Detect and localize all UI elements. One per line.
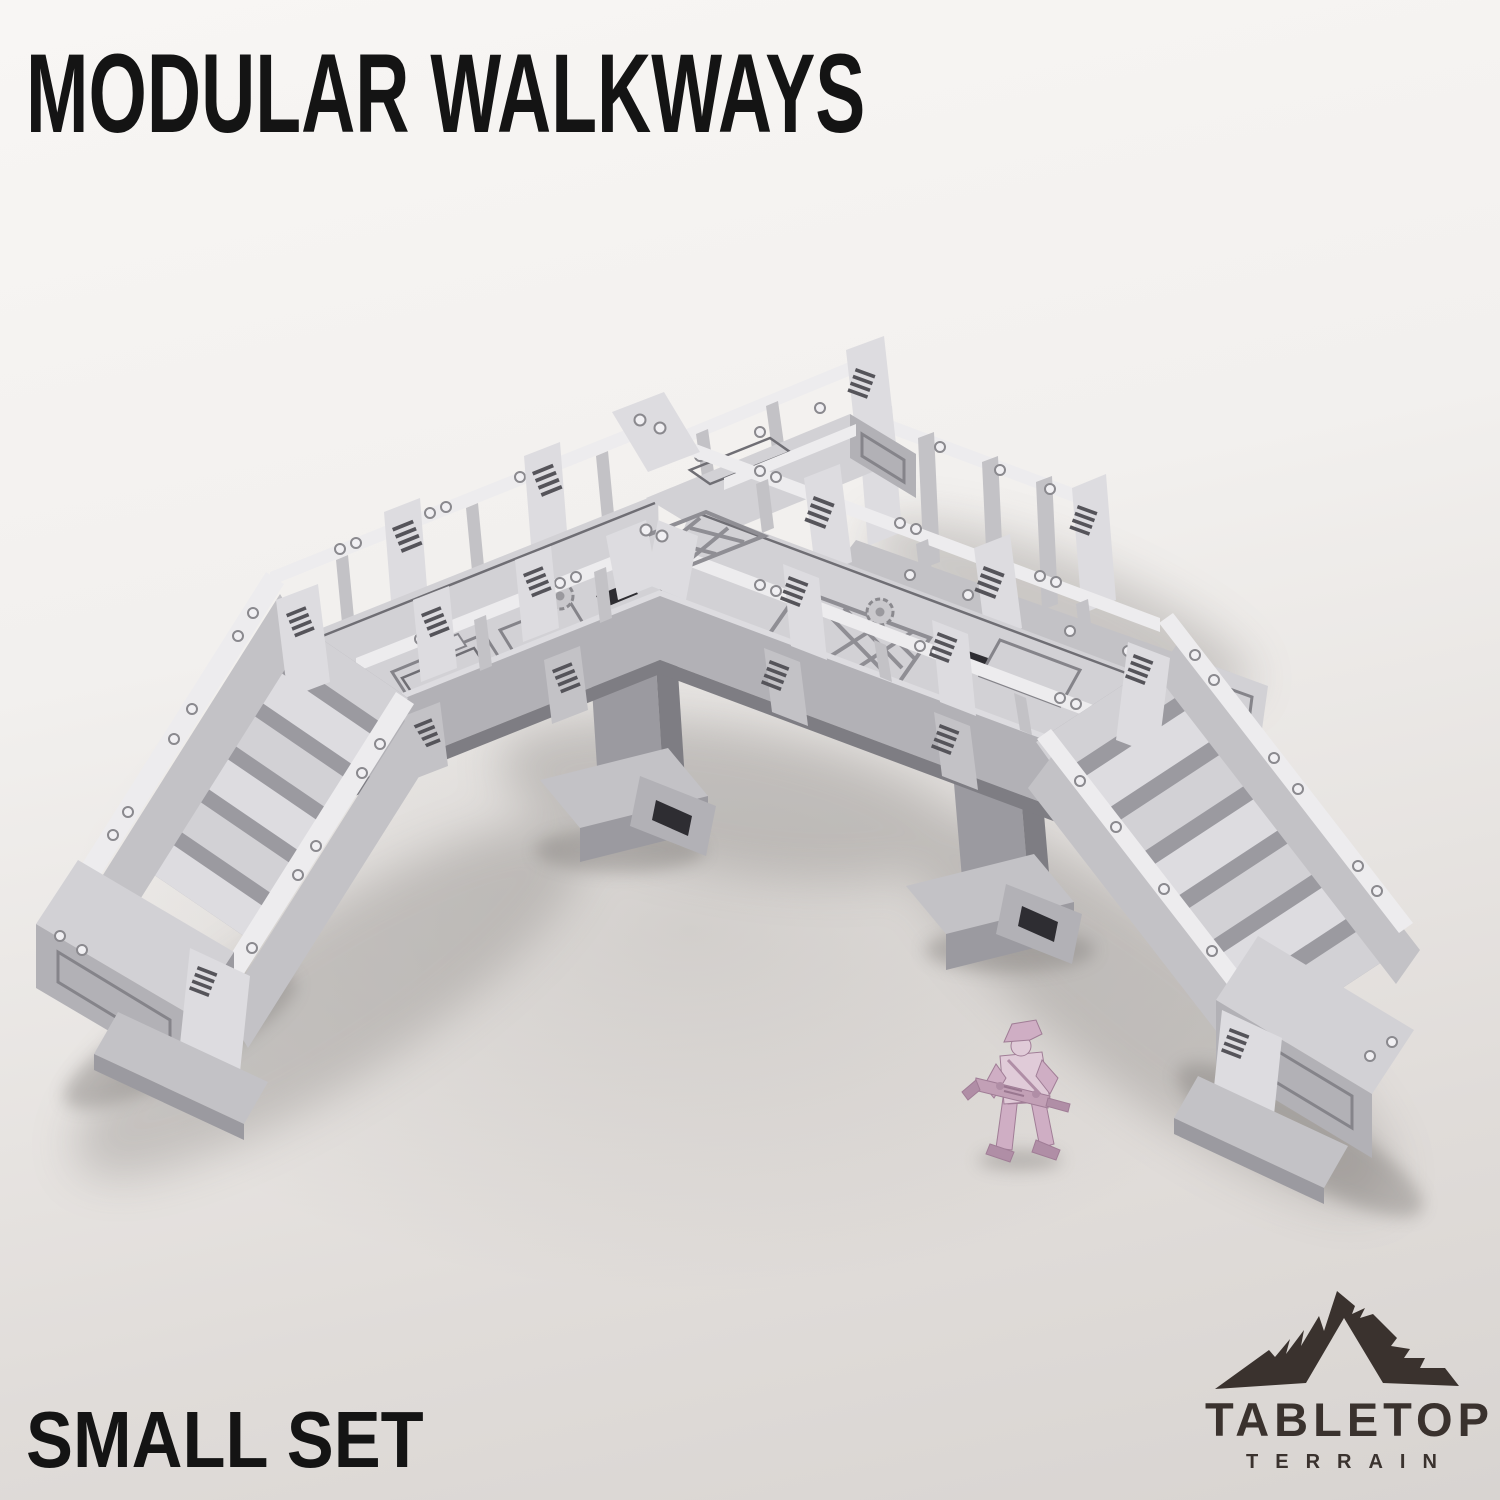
walkway-3d-render xyxy=(0,0,1500,1500)
mountain-icon xyxy=(1207,1286,1479,1392)
scale-miniature-soldier xyxy=(962,1020,1070,1162)
brand-logo: TABLETOP TERRAIN xyxy=(1205,1286,1481,1472)
set-size-label: SMALL SET xyxy=(26,1400,424,1480)
brand-tagline: TERRAIN xyxy=(1205,1452,1481,1472)
product-title: MODULAR WALKWAYS xyxy=(26,38,865,150)
product-image: MODULAR WALKWAYS SMALL SET TABLETOP TERR… xyxy=(0,0,1500,1500)
brand-name: TABLETOP xyxy=(1205,1396,1481,1443)
